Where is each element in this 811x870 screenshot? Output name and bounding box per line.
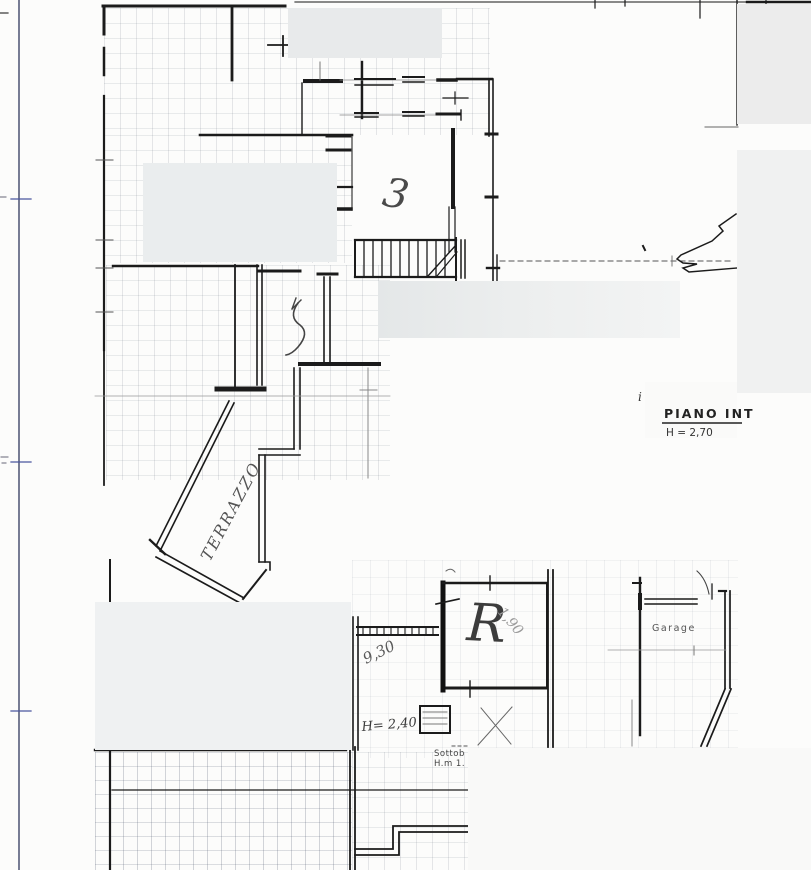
redaction-layer xyxy=(0,0,811,870)
redaction-block xyxy=(468,748,811,870)
redaction-block xyxy=(378,281,680,338)
redaction-block xyxy=(737,150,811,393)
redaction-block xyxy=(645,382,737,438)
redaction-block xyxy=(737,4,811,124)
scanned-floorplan-page: 3 TERRAZZO PIANO INT H = 2,70 i R 1,90 9… xyxy=(0,0,811,870)
redaction-block xyxy=(95,602,351,750)
redaction-block xyxy=(143,163,337,262)
redaction-block xyxy=(288,8,442,58)
